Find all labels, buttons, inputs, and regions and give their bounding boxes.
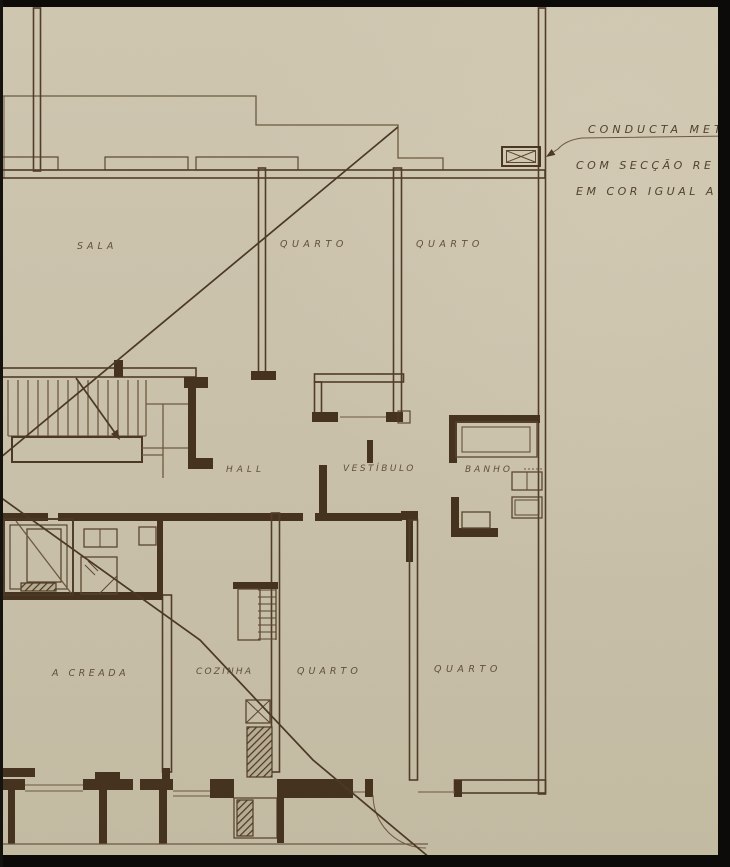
annotation-line-3: EM COR IGUAL A — [576, 185, 717, 198]
chimney-hatched — [247, 727, 272, 777]
photo-border-left — [0, 0, 3, 867]
annotation-line-1: CONDUCTA MET — [588, 123, 725, 136]
photo-border-right — [718, 0, 730, 867]
photo-border-top — [0, 0, 730, 7]
room-label-quarto-bottom-left: QUARTO — [297, 666, 362, 677]
room-label-hall: HALL — [226, 465, 265, 475]
annotation-text: CONDUCTA MET COM SECÇÃO RE EM COR IGUAL … — [576, 123, 725, 198]
annotation-line-2: COM SECÇÃO RE — [576, 159, 714, 172]
room-label-banho: BANHO — [465, 465, 513, 475]
photo-border-bottom — [0, 855, 730, 867]
room-label-quarto-top-right: QUARTO — [416, 239, 484, 250]
room-label-sala: SALA — [77, 241, 117, 252]
room-label-quarto-top-left: QUARTO — [280, 239, 348, 250]
blueprint-photo: SALA QUARTO QUARTO HALL VESTÍBULO BANHO … — [0, 0, 730, 867]
floor-plan-drawing: SALA QUARTO QUARTO HALL VESTÍBULO BANHO … — [0, 0, 730, 867]
room-label-quarto-bottom-right: QUARTO — [434, 664, 502, 675]
room-label-creada: A CREADA — [51, 668, 129, 679]
room-label-vestibulo: VESTÍBULO — [343, 462, 416, 474]
room-label-cozinha: COZINHA — [196, 667, 253, 677]
